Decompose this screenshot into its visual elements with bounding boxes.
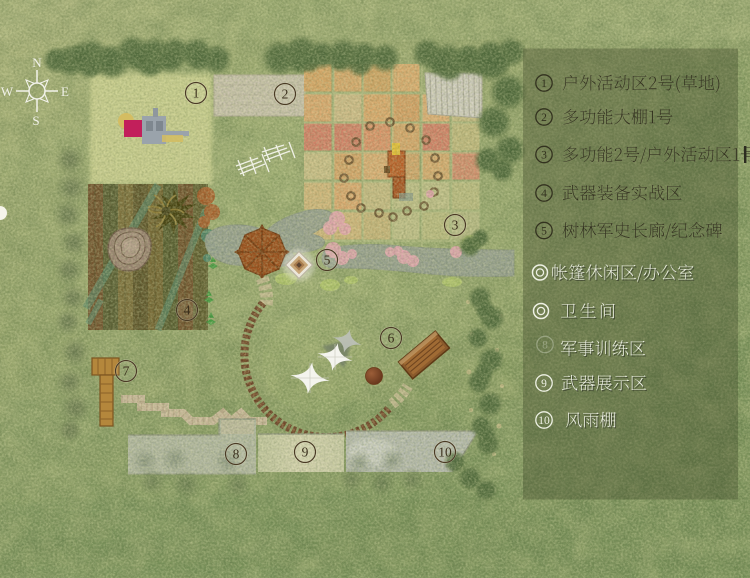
svg-text:9: 9 [302,445,309,460]
svg-text:9: 9 [541,378,547,390]
svg-text:3: 3 [452,218,459,233]
svg-text:8: 8 [233,447,240,462]
svg-text:4: 4 [184,303,191,318]
svg-text:N: N [32,55,42,70]
svg-text:3: 3 [541,150,547,162]
svg-text:2: 2 [282,87,289,102]
svg-text:1: 1 [541,78,547,90]
svg-text:4: 4 [541,188,547,200]
svg-text:1: 1 [193,86,200,101]
svg-text:2: 2 [541,112,547,124]
svg-text:5: 5 [541,226,547,238]
svg-text:6: 6 [388,331,395,346]
svg-text:W: W [1,84,14,99]
svg-text:10: 10 [438,445,452,460]
svg-text:8: 8 [542,340,548,352]
svg-text:S: S [32,113,39,128]
svg-text:7: 7 [123,364,130,379]
svg-text:E: E [61,84,69,99]
svg-text:10: 10 [538,415,550,427]
svg-text:5: 5 [324,253,331,268]
